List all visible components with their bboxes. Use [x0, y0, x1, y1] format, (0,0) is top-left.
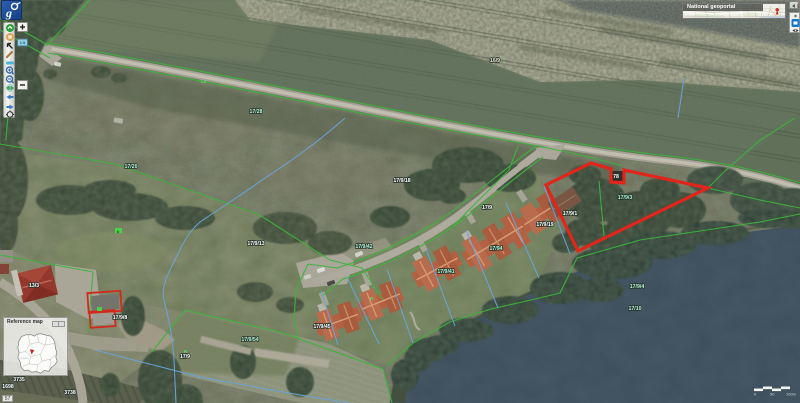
svg-text:17/10: 17/10: [629, 306, 642, 312]
svg-text:17/9/13: 17/9/13: [247, 241, 264, 247]
svg-text:50: 50: [770, 392, 775, 397]
svg-text:17/9/42: 17/9/42: [355, 244, 372, 250]
svg-text:13/3: 13/3: [29, 283, 39, 289]
svg-text:1:5: 1:5: [20, 40, 26, 45]
svg-text:100m: 100m: [786, 392, 797, 397]
svg-text:17/9/4: 17/9/4: [630, 284, 645, 290]
svg-text:g: g: [5, 6, 12, 20]
svg-text:17/9/18: 17/9/18: [393, 178, 410, 184]
svg-text:17/9/19: 17/9/19: [536, 222, 553, 228]
svg-text:17/94: 17/94: [490, 246, 503, 252]
svg-text:0: 0: [754, 392, 757, 397]
svg-text:Ls: Ls: [201, 79, 207, 84]
svg-text:17/9/45: 17/9/45: [313, 324, 330, 330]
svg-text:17/20: 17/20: [125, 164, 138, 170]
svg-text:17/9/1: 17/9/1: [563, 211, 578, 217]
svg-text:17/9/54: 17/9/54: [241, 337, 258, 343]
svg-text:78: 78: [613, 174, 619, 180]
svg-text:16/9: 16/9: [490, 58, 500, 64]
svg-text:17/9/8: 17/9/8: [113, 315, 128, 321]
svg-text:17/9: 17/9: [482, 205, 492, 211]
svg-text:3735: 3735: [13, 377, 25, 383]
svg-text:17/9/41: 17/9/41: [437, 269, 454, 275]
svg-text:1698: 1698: [2, 384, 14, 390]
svg-text:17/9/3: 17/9/3: [618, 195, 633, 201]
svg-text:3738: 3738: [64, 390, 76, 396]
svg-text:17/28: 17/28: [250, 109, 263, 115]
svg-text:17/9: 17/9: [180, 354, 190, 360]
